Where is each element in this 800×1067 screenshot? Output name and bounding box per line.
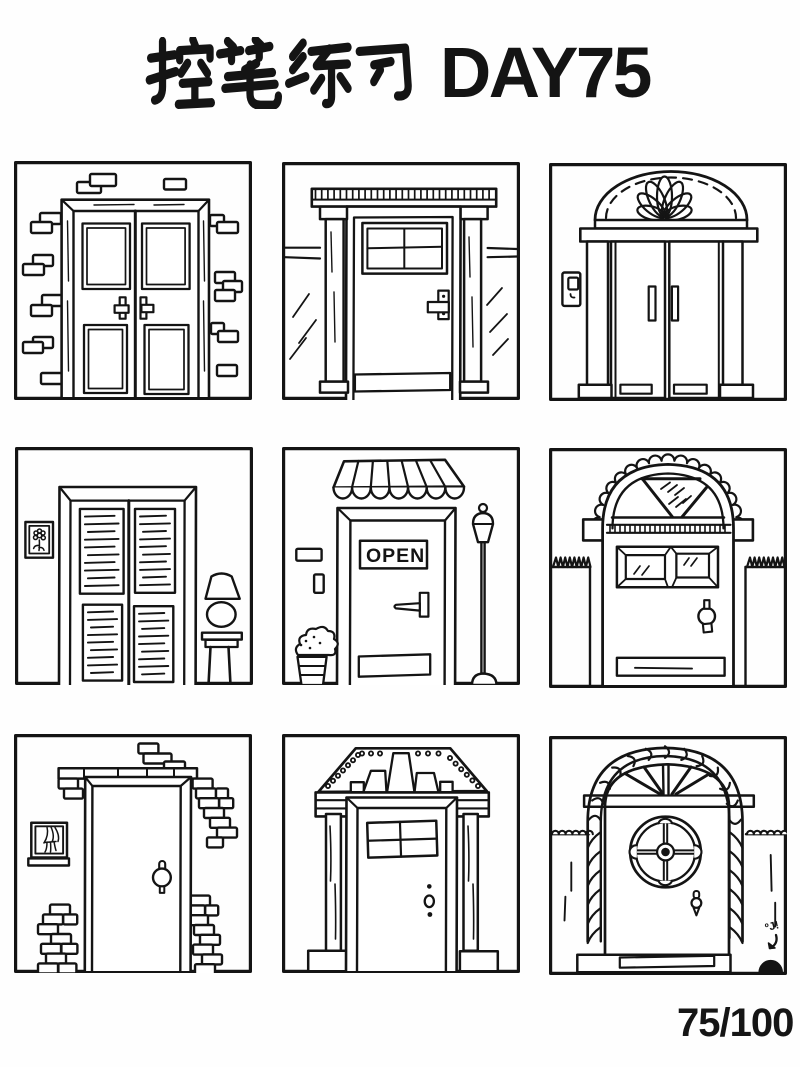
svg-text:DAY75: DAY75	[440, 37, 651, 109]
svg-text:ºJ!: ºJ!	[764, 919, 780, 934]
svg-text:OPEN: OPEN	[366, 545, 425, 567]
